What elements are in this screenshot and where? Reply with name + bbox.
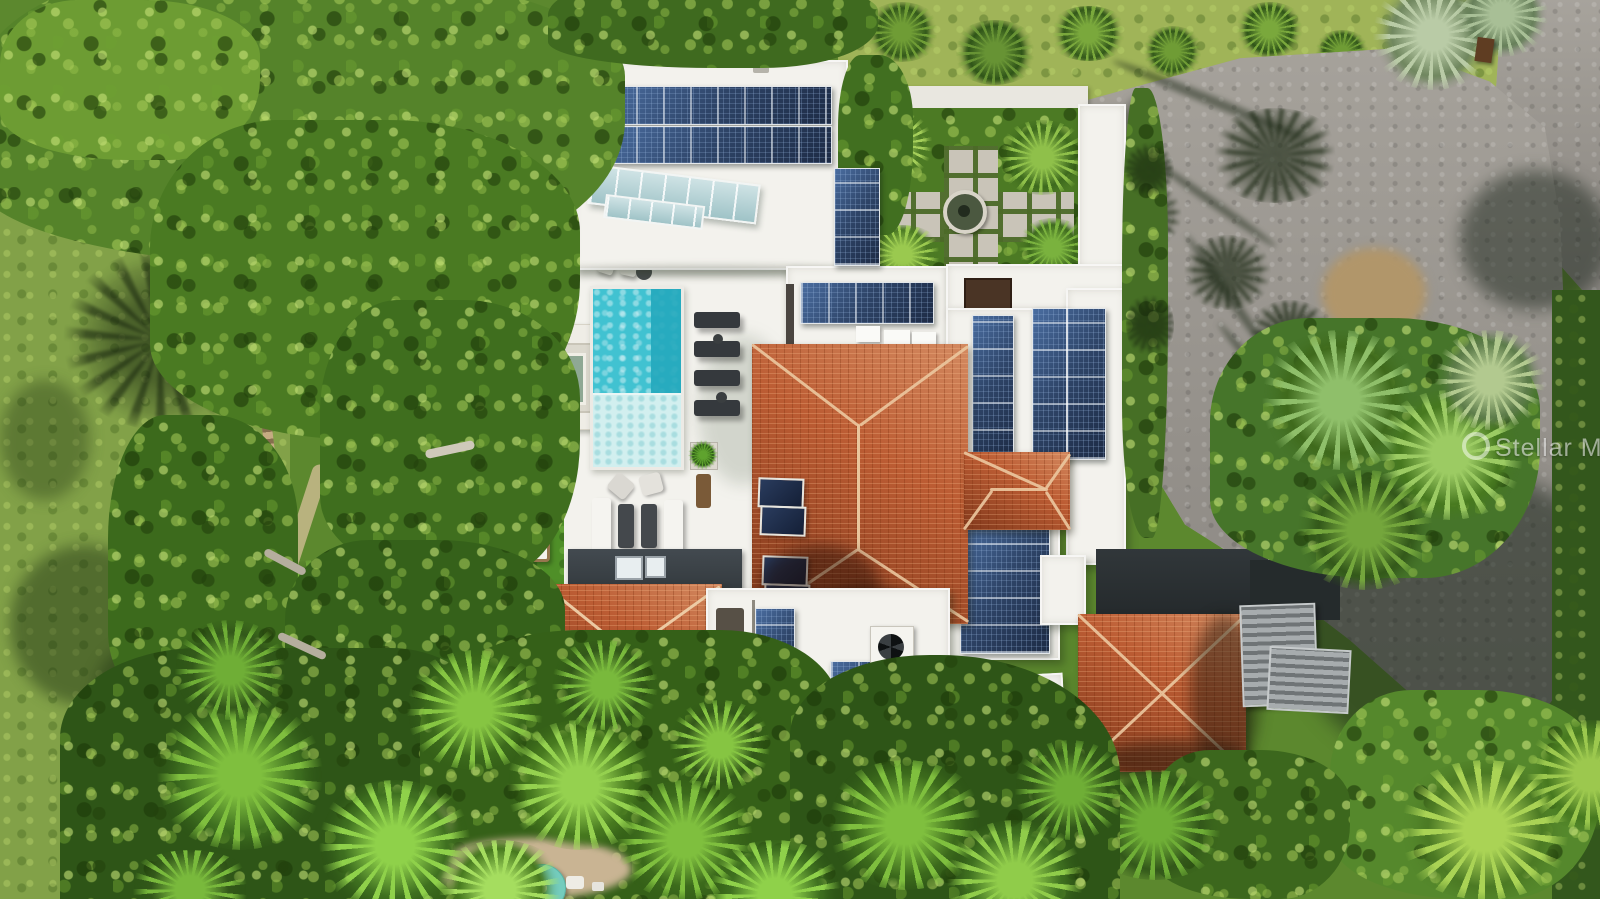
palm-tree [1290,470,1440,590]
aerial-photo: Stellar MLS [0,0,1600,899]
palm-shadow [1126,290,1174,360]
pergola-trellis [1266,646,1351,714]
roof-skylight [759,505,806,537]
sun-lounger [664,500,683,554]
solar-array [972,315,1014,459]
bush [995,120,1090,195]
palm-tree [170,620,290,720]
sun-lounger [694,312,740,328]
solar-array [1032,308,1106,460]
sun-lounger [641,504,657,548]
skylight [615,556,643,580]
panel-divider [1066,308,1068,458]
main-tile-roof-wing [964,452,1070,530]
roof-skylight [757,477,804,509]
solar-array [608,86,832,125]
sun-lounger [694,370,740,386]
palm-tree [665,700,775,790]
watermark-text: Stellar MLS [1495,434,1600,462]
sun-lounger [618,504,634,548]
bush [1046,6,1131,61]
mailbox [1474,37,1494,63]
bush [950,20,1040,85]
white-roof-wing [1078,104,1126,288]
tree-canopy [548,0,878,68]
roof-vent [856,326,880,342]
palm-tree [1430,330,1550,430]
pool-dark-band [651,289,681,393]
bush [1140,26,1205,76]
bush [1232,2,1307,57]
fountain-center [958,205,970,217]
shadow [1460,170,1600,310]
tree-canopy [320,300,580,580]
palm-tree [545,640,665,730]
pool-step-line [593,393,681,395]
sun-lounger [694,400,740,416]
watermark: Stellar MLS [1462,432,1600,463]
palm-tree [150,700,330,850]
palm-tree [1010,740,1130,840]
pool-shallow-ledge [593,395,681,467]
planter-tree [688,440,718,470]
side-table [713,334,723,344]
side-table [716,392,727,403]
solar-array [960,522,1050,654]
sun-lounger [592,498,611,552]
skylight [645,556,666,578]
watermark-logo-icon [1462,432,1490,460]
pool [590,286,684,470]
solar-array [608,126,832,164]
wall-shadow [786,284,794,346]
shadow [0,380,90,500]
roof-ridge [857,424,860,551]
palm-shadow [1124,140,1174,200]
garden-bench [696,474,711,508]
solar-array [834,168,880,266]
patio-chair [592,882,604,891]
solar-array [800,282,934,324]
